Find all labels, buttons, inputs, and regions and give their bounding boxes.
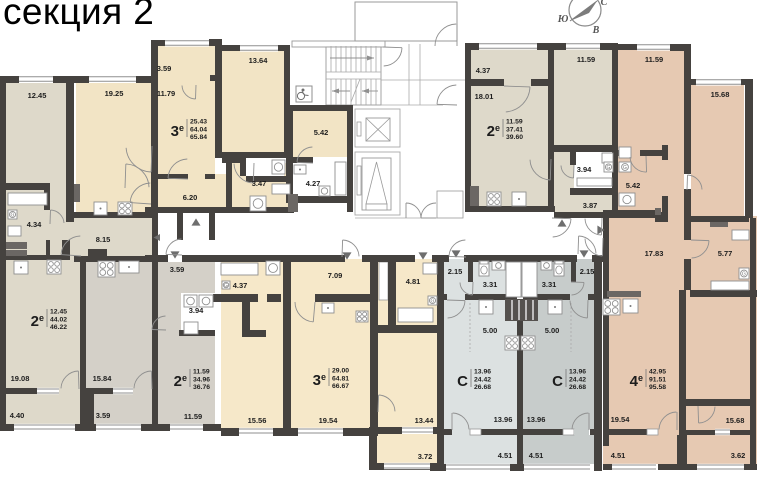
svg-text:15.56: 15.56	[248, 416, 267, 425]
svg-text:3.31: 3.31	[483, 280, 498, 289]
svg-text:4.34: 4.34	[27, 220, 42, 229]
svg-text:3.62: 3.62	[731, 451, 746, 460]
svg-text:19.08: 19.08	[11, 374, 30, 383]
svg-text:3.59: 3.59	[96, 411, 111, 420]
svg-text:5.42: 5.42	[626, 181, 641, 190]
svg-text:3.87: 3.87	[583, 201, 598, 210]
svg-text:12.45: 12.45	[28, 91, 47, 100]
svg-text:34.96: 34.96	[193, 376, 210, 383]
svg-text:С: С	[552, 373, 563, 390]
svg-text:7.09: 7.09	[328, 271, 343, 280]
svg-text:4.51: 4.51	[498, 451, 513, 460]
svg-text:3.94: 3.94	[577, 165, 592, 174]
svg-text:42.95: 42.95	[649, 369, 666, 376]
svg-text:5.00: 5.00	[483, 326, 498, 335]
svg-text:11.79: 11.79	[157, 89, 175, 98]
svg-text:13.44: 13.44	[415, 416, 435, 425]
svg-text:19.25: 19.25	[105, 89, 124, 98]
svg-text:91.51: 91.51	[649, 376, 666, 383]
svg-text:4.37: 4.37	[233, 281, 248, 290]
svg-text:13.96: 13.96	[494, 415, 513, 424]
svg-text:64.04: 64.04	[190, 126, 207, 133]
svg-text:8.15: 8.15	[96, 235, 111, 244]
svg-text:11.59: 11.59	[193, 369, 210, 376]
svg-text:24.42: 24.42	[569, 376, 586, 383]
svg-text:11.59: 11.59	[506, 119, 523, 126]
svg-text:В: В	[592, 25, 600, 36]
svg-text:65.84: 65.84	[190, 134, 207, 141]
svg-text:5.42: 5.42	[314, 128, 329, 137]
svg-text:24.42: 24.42	[474, 376, 491, 383]
svg-text:15.84: 15.84	[93, 374, 113, 383]
svg-text:26.68: 26.68	[569, 384, 586, 391]
svg-text:G: G	[742, 272, 746, 278]
svg-text:18.01: 18.01	[475, 92, 494, 101]
svg-text:3.94: 3.94	[189, 306, 204, 315]
svg-text:66.67: 66.67	[332, 383, 349, 390]
svg-text:2.15: 2.15	[580, 267, 595, 276]
svg-text:29.00: 29.00	[332, 368, 349, 375]
svg-text:3.59: 3.59	[170, 265, 185, 274]
svg-text:25.43: 25.43	[190, 119, 207, 126]
svg-text:4.40: 4.40	[10, 411, 25, 420]
svg-text:3.31: 3.31	[542, 280, 557, 289]
svg-text:5.77: 5.77	[718, 249, 733, 258]
svg-text:64.81: 64.81	[332, 375, 349, 382]
svg-text:13.96: 13.96	[569, 369, 586, 376]
svg-text:15.68: 15.68	[711, 90, 730, 99]
svg-text:11.59: 11.59	[184, 412, 202, 421]
svg-text:17.83: 17.83	[645, 249, 664, 258]
svg-text:6.20: 6.20	[183, 193, 198, 202]
svg-text:3.72: 3.72	[418, 452, 433, 461]
svg-text:19.54: 19.54	[611, 415, 631, 424]
svg-text:3.59: 3.59	[157, 64, 172, 73]
svg-text:95.58: 95.58	[649, 384, 666, 391]
svg-text:4.51: 4.51	[529, 451, 544, 460]
svg-text:26.68: 26.68	[474, 384, 491, 391]
svg-text:19.54: 19.54	[319, 416, 339, 425]
svg-text:44.02: 44.02	[50, 316, 67, 323]
svg-text:4.27: 4.27	[306, 179, 321, 188]
svg-text:G: G	[623, 165, 627, 171]
svg-text:2.15: 2.15	[448, 267, 463, 276]
svg-text:13.64: 13.64	[249, 56, 269, 65]
svg-text:3.47: 3.47	[252, 179, 267, 188]
svg-text:15.68: 15.68	[726, 416, 745, 425]
svg-text:4.51: 4.51	[611, 451, 626, 460]
svg-text:G: G	[224, 283, 228, 289]
svg-text:12.45: 12.45	[50, 309, 67, 316]
svg-text:37.41: 37.41	[506, 126, 523, 133]
svg-text:G: G	[607, 165, 611, 171]
svg-text:Ю: Ю	[557, 14, 569, 25]
svg-text:G: G	[431, 299, 435, 305]
svg-text:36.76: 36.76	[193, 384, 210, 391]
svg-text:13.96: 13.96	[474, 369, 491, 376]
svg-text:4.37: 4.37	[476, 66, 491, 75]
svg-text:11.59: 11.59	[645, 55, 663, 64]
svg-text:С: С	[601, 0, 608, 8]
svg-text:39.60: 39.60	[506, 134, 523, 141]
svg-text:46.22: 46.22	[50, 324, 67, 331]
svg-text:G: G	[11, 213, 15, 219]
svg-text:4.81: 4.81	[406, 277, 421, 286]
svg-text:13.96: 13.96	[527, 415, 546, 424]
svg-text:секция 2: секция 2	[3, 0, 154, 32]
svg-text:С: С	[457, 373, 468, 390]
svg-text:5.00: 5.00	[545, 326, 560, 335]
svg-text:11.59: 11.59	[577, 55, 595, 64]
